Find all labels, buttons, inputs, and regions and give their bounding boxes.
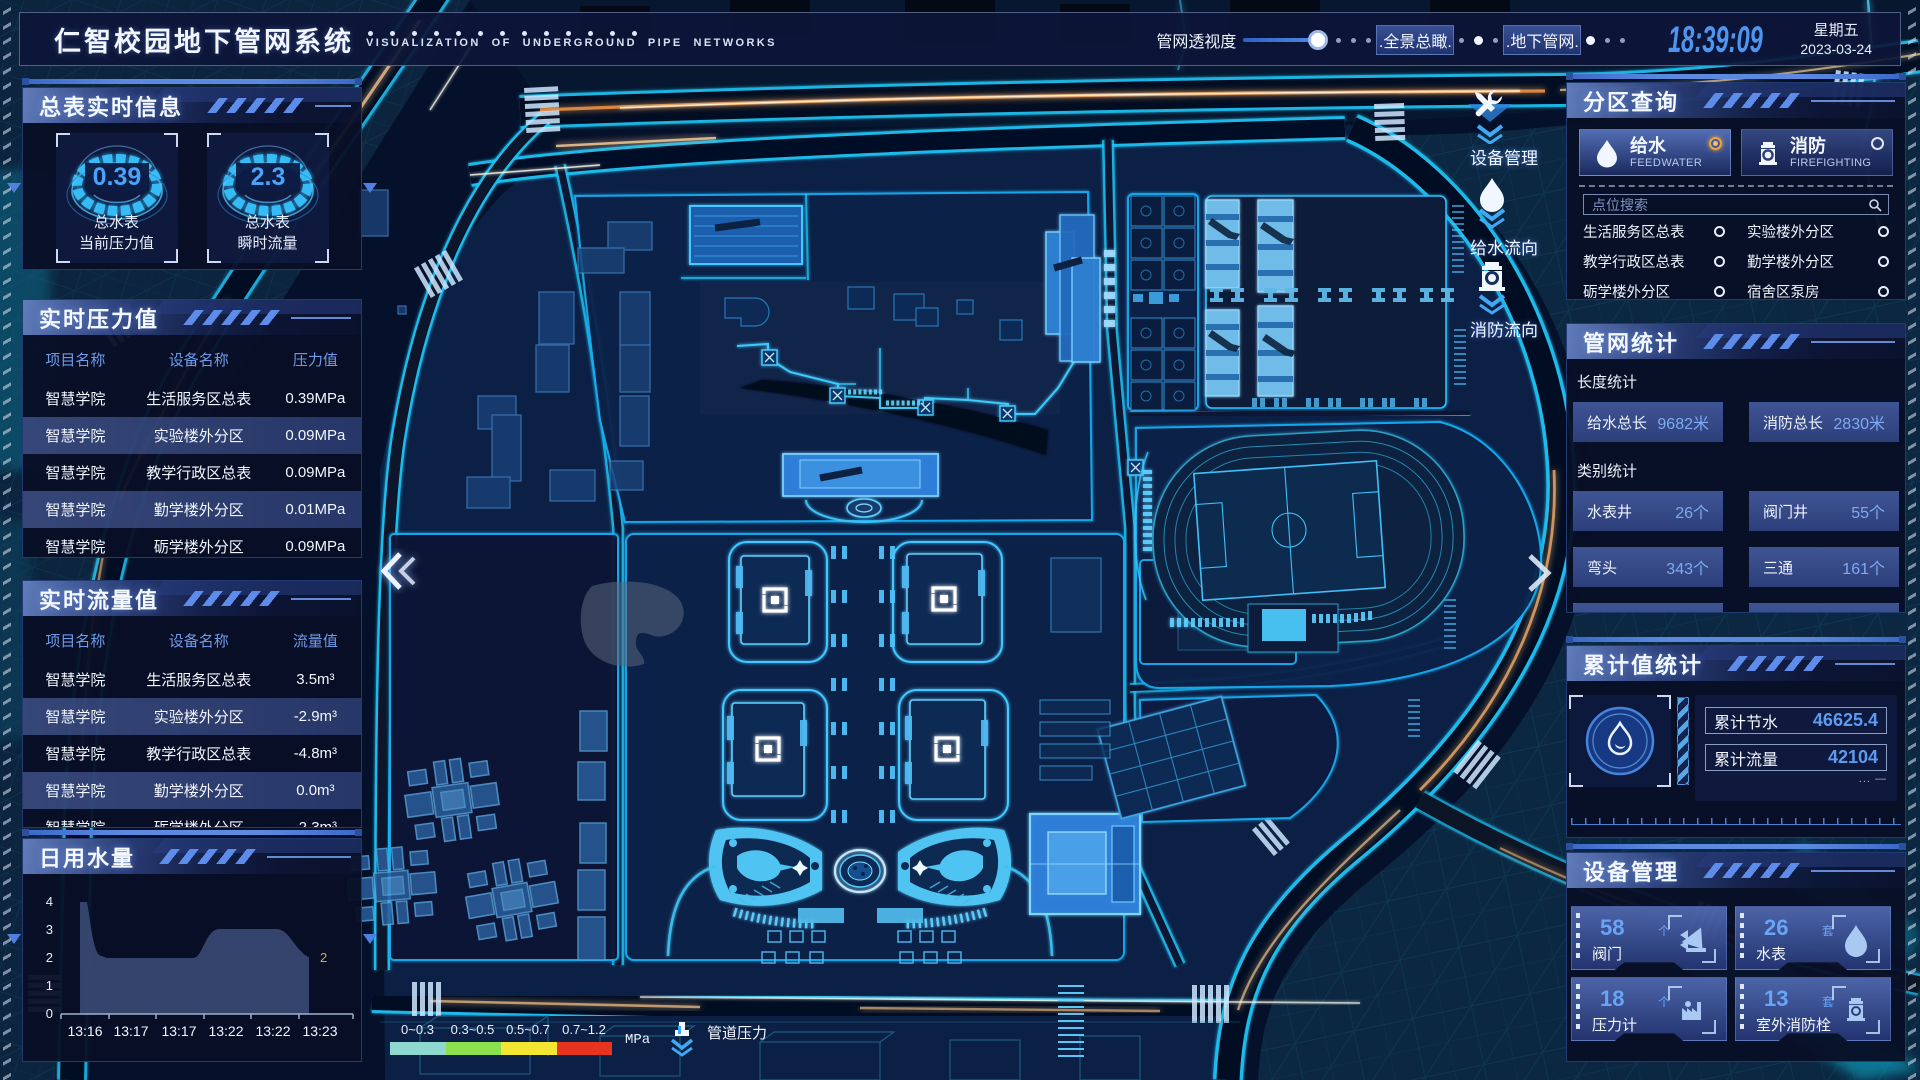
svg-text:13:17: 13:17 — [161, 1023, 196, 1039]
svg-text:13:17: 13:17 — [113, 1023, 148, 1039]
svg-text:2: 2 — [46, 950, 53, 965]
svg-text:3: 3 — [46, 922, 53, 937]
svg-text:13:16: 13:16 — [67, 1023, 102, 1039]
svg-text:2: 2 — [320, 950, 327, 965]
svg-text:2.3: 2.3 — [250, 163, 285, 191]
svg-text:0: 0 — [46, 1006, 53, 1021]
svg-text:13:23: 13:23 — [302, 1023, 337, 1039]
svg-text:0.39: 0.39 — [92, 163, 141, 191]
svg-text:1: 1 — [46, 978, 53, 993]
svg-text:13:22: 13:22 — [255, 1023, 290, 1039]
svg-text:13:22: 13:22 — [208, 1023, 243, 1039]
svg-text:4: 4 — [46, 894, 53, 909]
